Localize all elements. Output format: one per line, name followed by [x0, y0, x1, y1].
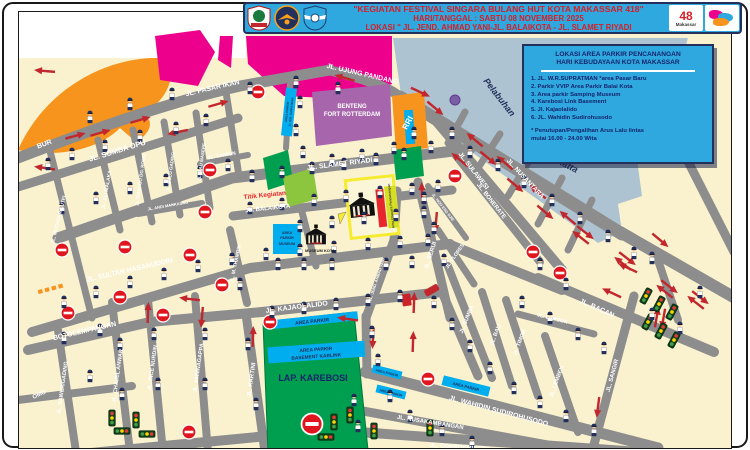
- traffic-light-icon: [133, 412, 139, 428]
- police-officer-icon: [401, 148, 406, 161]
- roundabout-marker: [450, 95, 460, 105]
- police-officer-icon: [487, 362, 492, 375]
- police-officer-icon: [245, 338, 250, 351]
- no-entry-sign-icon: [421, 372, 435, 386]
- police-officer-icon: [279, 166, 284, 179]
- police-officer-icon: [397, 290, 402, 303]
- police-officer-icon: [409, 183, 414, 196]
- police-officer-icon: [69, 148, 74, 161]
- city-hall-event-box: Area Upacara Pencanangan: [345, 176, 400, 239]
- parking-item: 5. Jl. Kajaolalido: [531, 107, 705, 113]
- police-officer-icon: [411, 127, 416, 140]
- no-entry-sign-icon: [118, 240, 132, 254]
- museum-label: MUSEUM KOTA: [305, 248, 335, 253]
- parking-label: AREA: [282, 231, 293, 235]
- police-officer-icon: [537, 396, 542, 409]
- police-officer-icon: [391, 142, 396, 155]
- parking-location-list: 1. JL. W.R.SUPRATMAN *area Pasar Baru 2.…: [531, 76, 705, 121]
- traffic-light-icon: [109, 410, 115, 426]
- police-officer-icon: [297, 220, 302, 233]
- police-officer-icon: [591, 424, 596, 437]
- police-officer-icon: [151, 328, 156, 341]
- no-entry-sign-icon: [182, 425, 196, 439]
- police-officer-icon: [297, 244, 302, 257]
- closure-note-line2: mulai 16.00 - 24.00 Wita: [531, 136, 705, 144]
- police-officer-icon: [421, 192, 426, 205]
- police-traffic-logo: [302, 5, 328, 31]
- red-post-icon: [401, 293, 412, 306]
- no-entry-sign-icon: [448, 169, 462, 183]
- police-officer-icon: [311, 194, 316, 207]
- traffic-light-icon: [347, 407, 353, 423]
- banner-line2: HARI/TANGGAL : SABTU 08 NOVEMBER 2025: [329, 14, 668, 23]
- police-officer-icon: [397, 236, 402, 249]
- traffic-light-icon: [318, 434, 334, 440]
- police-officer-icon: [87, 370, 92, 383]
- police-officer-icon: [369, 326, 374, 339]
- police-officer-icon: [409, 256, 414, 269]
- police-officer-icon: [155, 378, 160, 391]
- traffic-light-icon: [331, 414, 337, 430]
- singara-bulang-logo: [705, 5, 739, 31]
- traffic-light-icon: [139, 431, 155, 437]
- makassar-418-logo: 48 Makassar: [669, 5, 703, 31]
- police-officer-icon: [127, 98, 132, 111]
- police-officer-icon: [202, 378, 207, 391]
- police-officer-icon: [335, 82, 340, 95]
- makassar-city-emblem: [246, 5, 272, 31]
- police-officer-icon: [577, 212, 582, 225]
- police-officer-icon: [421, 206, 426, 219]
- parking-item: 3. Area parkir Samping Museum: [531, 92, 705, 98]
- police-officer-icon: [195, 260, 200, 273]
- police-officer-icon: [61, 296, 66, 309]
- police-officer-icon: [601, 342, 606, 355]
- police-officer-icon: [249, 170, 254, 183]
- police-officer-icon: [93, 192, 98, 205]
- police-officer-icon: [467, 340, 472, 353]
- police-officer-icon: [697, 286, 702, 299]
- no-entry-sign-icon: [183, 248, 197, 262]
- police-officer-icon: [343, 190, 348, 203]
- traffic-plan-page: AREA PARKIR AREA PARKIR BASEMENT KARLINK…: [0, 0, 750, 450]
- info-title-line1: LOKASI AREA PARKIR PENCANANGAN: [531, 51, 705, 59]
- karebosi-label: LAP. KAREBOSI: [278, 373, 347, 383]
- police-officer-icon: [202, 328, 207, 341]
- police-officer-icon: [393, 209, 398, 222]
- police-officer-icon: [173, 122, 178, 135]
- logo-48-text: Makassar: [676, 22, 697, 27]
- police-officer-icon: [537, 258, 542, 271]
- police-officer-icon: [387, 390, 392, 403]
- police-officer-icon: [329, 216, 334, 229]
- police-officer-icon: [237, 278, 242, 291]
- police-officer-icon: [449, 318, 454, 331]
- parking-item: 6. JL. Wahidin Sudirohusodo: [531, 115, 705, 121]
- police-officer-icon: [117, 338, 122, 351]
- police-officer-icon: [293, 76, 298, 89]
- police-officer-icon: [631, 247, 636, 260]
- police-officer-icon: [297, 96, 302, 109]
- police-officer-icon: [549, 194, 554, 207]
- police-officer-icon: [677, 322, 682, 335]
- police-officer-icon: [467, 146, 472, 159]
- parking-item: 2. Parkir VVIP Area Parkir Balai Kota: [531, 84, 705, 90]
- police-officer-icon: [361, 212, 366, 225]
- police-officer-icon: [45, 158, 50, 171]
- police-officer-icon: [563, 278, 568, 291]
- police-officer-icon: [161, 268, 166, 281]
- no-entry-sign-icon: [156, 308, 170, 322]
- banner-text: "KEGIATAN FESTIVAL SINGARA BULANG HUT KO…: [329, 4, 668, 33]
- police-officer-icon: [563, 410, 568, 423]
- closure-note: * Penutupan/Pengalihan Arus Lalu lintas …: [531, 128, 705, 143]
- no-entry-sign-icon: [203, 163, 217, 177]
- police-officer-icon: [301, 258, 306, 271]
- banner-line3: LOKASI " JL. JEND. AHMAD YANI-JL. BALAIK…: [329, 23, 668, 32]
- green-block: [393, 146, 424, 180]
- dishub-logo: [274, 5, 300, 31]
- police-officer-icon: [428, 141, 433, 154]
- parking-item: 4. Karebosi Link Basement: [531, 99, 705, 105]
- police-officer-icon: [93, 286, 98, 299]
- police-officer-icon: [203, 114, 208, 127]
- no-entry-sign-icon: [251, 85, 265, 99]
- police-officer-icon: [275, 258, 280, 271]
- parking-info-box: LOKASI AREA PARKIR PENCANANGAN HARI KEBU…: [522, 44, 714, 164]
- fort-label: BENTENG: [337, 104, 367, 110]
- no-entry-sign-icon: [526, 245, 540, 259]
- police-officer-icon: [431, 222, 436, 235]
- no-entry-sign-icon: [55, 243, 69, 257]
- police-officer-icon: [511, 382, 516, 395]
- police-officer-icon: [575, 328, 580, 341]
- police-officer-icon: [87, 111, 92, 124]
- police-officer-icon: [169, 88, 174, 101]
- traffic-light-icon: [114, 428, 130, 434]
- police-officer-icon: [127, 276, 132, 289]
- logo-48-number: 48: [679, 10, 692, 22]
- police-officer-icon: [300, 146, 305, 159]
- traffic-light-icon: [371, 423, 377, 439]
- police-officer-icon: [263, 248, 268, 261]
- closure-note-line1: * Penutupan/Pengalihan Arus Lalu lintas: [531, 128, 705, 136]
- logo-blob: [713, 18, 729, 26]
- police-officer-icon: [329, 258, 334, 271]
- police-officer-icon: [333, 298, 338, 311]
- police-officer-icon: [247, 82, 252, 95]
- police-officer-icon: [649, 308, 654, 321]
- info-title-line2: HARI KEBUDAYAAN KOTA MAKASSAR: [531, 59, 705, 67]
- no-entry-sign-icon: [198, 205, 212, 219]
- police-officer-icon: [127, 182, 132, 195]
- police-officer-icon: [449, 127, 454, 140]
- police-officer-icon: [351, 394, 356, 407]
- no-entry-sign-icon: [215, 278, 229, 292]
- police-officer-icon: [373, 153, 378, 166]
- police-officer-icon: [355, 420, 360, 433]
- police-officer-icon: [253, 398, 258, 411]
- police-officer-icon: [605, 230, 610, 243]
- police-officer-icon: [377, 186, 382, 199]
- police-officer-icon: [365, 238, 370, 251]
- parking-label: PARKIR: [280, 236, 294, 240]
- police-officer-icon: [375, 354, 380, 367]
- fort-label: FORT ROTTERDAM: [324, 112, 380, 118]
- police-officer-icon: [495, 159, 500, 172]
- police-officer-icon: [425, 234, 430, 247]
- police-officer-icon: [435, 180, 440, 193]
- police-officer-icon: [119, 388, 124, 401]
- police-officer-icon: [293, 124, 298, 137]
- police-officer-icon: [519, 296, 524, 309]
- parking-label: MUSEUM: [279, 242, 295, 246]
- no-entry-sign-icon: [113, 290, 127, 304]
- banner-line1: "KEGIATAN FESTIVAL SINGARA BULANG HUT KO…: [329, 4, 668, 14]
- parking-item: 1. JL. W.R.SUPRATMAN *area Pasar Baru: [531, 76, 705, 82]
- police-officer-icon: [431, 296, 436, 309]
- header-banner: "KEGIATAN FESTIVAL SINGARA BULANG HUT KO…: [243, 2, 742, 34]
- info-title-underline: [541, 70, 695, 72]
- police-officer-icon: [225, 159, 230, 172]
- police-officer-icon: [649, 252, 654, 265]
- no-entry-sign-icon: [302, 414, 323, 435]
